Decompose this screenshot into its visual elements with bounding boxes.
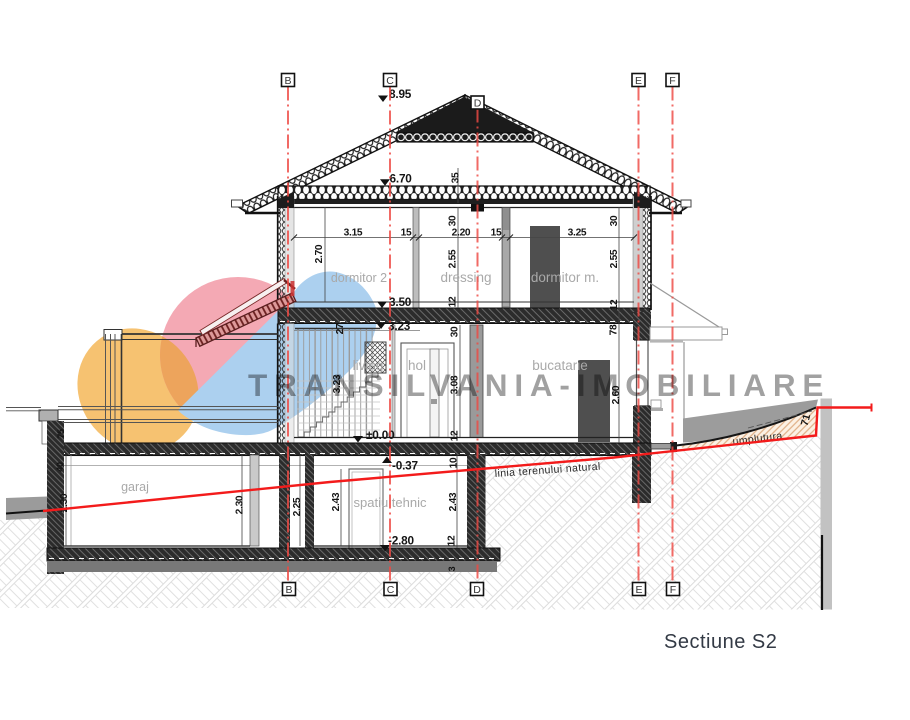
svg-text:40: 40 bbox=[55, 462, 65, 472]
svg-text:E: E bbox=[635, 75, 642, 87]
svg-text:B: B bbox=[284, 75, 291, 87]
svg-text:2.30: 2.30 bbox=[235, 495, 246, 514]
svg-text:2.55: 2.55 bbox=[448, 249, 459, 268]
svg-text:C: C bbox=[386, 75, 394, 87]
svg-text:30: 30 bbox=[450, 326, 461, 337]
svg-text:2.55: 2.55 bbox=[609, 249, 620, 268]
svg-text:Sectiune S2: Sectiune S2 bbox=[664, 631, 777, 653]
svg-text:-2.80: -2.80 bbox=[388, 534, 415, 548]
svg-text:dormitor m.: dormitor m. bbox=[531, 270, 599, 285]
svg-text:27: 27 bbox=[335, 323, 346, 334]
svg-text:78: 78 bbox=[609, 324, 620, 335]
svg-text:2.70: 2.70 bbox=[314, 244, 325, 263]
svg-text:10: 10 bbox=[449, 457, 460, 468]
svg-text:15: 15 bbox=[491, 228, 502, 239]
svg-text:6.70: 6.70 bbox=[390, 172, 413, 186]
svg-text:12: 12 bbox=[450, 430, 461, 441]
svg-text:dormitor 2: dormitor 2 bbox=[331, 271, 387, 285]
svg-text:35: 35 bbox=[451, 172, 462, 183]
svg-text:12: 12 bbox=[448, 296, 459, 307]
svg-text:3.25: 3.25 bbox=[568, 228, 587, 239]
svg-text:2.20: 2.20 bbox=[452, 228, 471, 239]
svg-text:D: D bbox=[473, 584, 481, 596]
svg-text:2.25: 2.25 bbox=[292, 497, 303, 516]
svg-text:E: E bbox=[635, 584, 642, 596]
svg-text:C: C bbox=[387, 584, 395, 596]
svg-text:-0.37: -0.37 bbox=[392, 459, 419, 473]
svg-text:2.43: 2.43 bbox=[331, 492, 342, 511]
svg-text:75: 75 bbox=[56, 429, 66, 439]
svg-text:30: 30 bbox=[609, 215, 620, 226]
svg-text:2.43: 2.43 bbox=[448, 492, 459, 511]
svg-text:dressing: dressing bbox=[440, 270, 491, 285]
svg-text:12: 12 bbox=[609, 299, 620, 310]
svg-text:TRANSILVANIA-IMOBILIARE: TRANSILVANIA-IMOBILIARE bbox=[248, 367, 830, 403]
svg-text:B: B bbox=[285, 584, 292, 596]
svg-text:garaj: garaj bbox=[121, 480, 149, 494]
svg-text:12: 12 bbox=[447, 535, 458, 546]
svg-text:3.50: 3.50 bbox=[389, 295, 412, 309]
svg-text:3.23: 3.23 bbox=[388, 319, 411, 333]
svg-text:15: 15 bbox=[401, 228, 412, 239]
svg-text:F: F bbox=[670, 584, 676, 596]
svg-text:3: 3 bbox=[447, 566, 457, 571]
svg-text:F: F bbox=[669, 75, 675, 87]
svg-text:D: D bbox=[474, 98, 482, 110]
svg-text:30: 30 bbox=[448, 215, 459, 226]
svg-text:3.15: 3.15 bbox=[344, 228, 363, 239]
svg-text:8.95: 8.95 bbox=[389, 87, 412, 101]
